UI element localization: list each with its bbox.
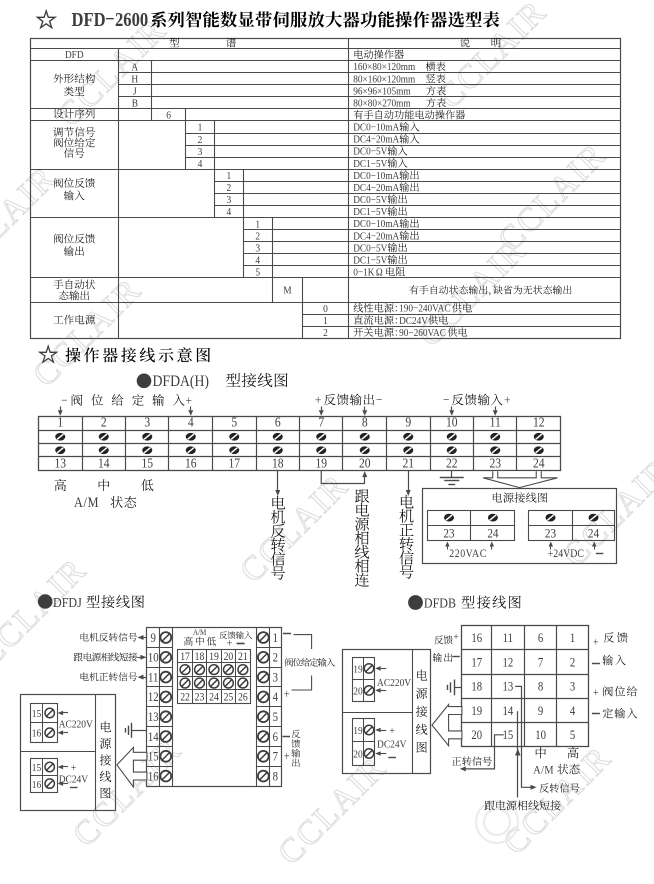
svg-text:J: J [133, 86, 137, 98]
svg-text:23: 23 [443, 526, 454, 541]
svg-text:2: 2 [101, 415, 107, 430]
svg-text:14: 14 [98, 456, 110, 471]
svg-text:1: 1 [323, 315, 328, 327]
svg-text:+: + [71, 762, 77, 774]
svg-text:DC1−5V: DC1−5V [353, 255, 388, 267]
svg-text:+24VDC: +24VDC [548, 547, 584, 560]
svg-text:DC4−20mA: DC4−20mA [353, 231, 400, 243]
svg-text:4: 4 [198, 158, 203, 170]
svg-text:DC1−5V: DC1−5V [353, 158, 388, 170]
svg-text:18: 18 [272, 456, 284, 471]
svg-text:3: 3 [273, 671, 279, 685]
svg-text:DFDJ: DFDJ [53, 594, 82, 610]
svg-text:M: M [283, 285, 291, 297]
svg-text:23: 23 [489, 456, 501, 471]
svg-text:4: 4 [188, 415, 194, 430]
svg-text:+: + [315, 392, 321, 407]
svg-text:9: 9 [151, 631, 157, 645]
svg-text:7: 7 [318, 415, 324, 430]
svg-text:15: 15 [141, 456, 153, 471]
svg-text:DC0−5V: DC0−5V [353, 146, 388, 158]
svg-text:19: 19 [353, 664, 362, 676]
svg-text:1: 1 [226, 170, 231, 182]
svg-text:DC1−5V: DC1−5V [353, 207, 388, 219]
svg-text:17: 17 [471, 656, 482, 670]
svg-text:2: 2 [226, 182, 231, 194]
svg-text:+: + [227, 637, 233, 650]
svg-text:90−260VAC: 90−260VAC [399, 327, 446, 339]
svg-text:25: 25 [224, 692, 234, 704]
svg-text:2: 2 [323, 327, 328, 339]
svg-text:1: 1 [57, 415, 63, 430]
svg-text:80×160×120mm: 80×160×120mm [353, 74, 415, 86]
svg-text:26: 26 [238, 692, 248, 704]
svg-text:5: 5 [570, 728, 576, 742]
svg-text:2: 2 [273, 651, 279, 665]
svg-text:5: 5 [255, 267, 260, 279]
svg-text:190−240VAC: 190−240VAC [399, 303, 451, 315]
svg-text:22: 22 [180, 692, 190, 704]
svg-text:20: 20 [359, 456, 371, 471]
svg-text:13: 13 [502, 680, 513, 694]
svg-text:16: 16 [148, 770, 159, 784]
svg-text:11: 11 [148, 671, 159, 685]
svg-text:DFD: DFD [72, 9, 106, 31]
svg-text:−: − [61, 393, 67, 408]
svg-text:160×80×120mm: 160×80×120mm [353, 62, 415, 74]
svg-text:24: 24 [533, 456, 545, 471]
svg-text:AC220V: AC220V [377, 677, 412, 689]
svg-text:10: 10 [446, 415, 458, 430]
svg-text:18: 18 [471, 680, 482, 694]
svg-text:−: − [105, 8, 114, 30]
svg-text:DC0−5V: DC0−5V [353, 243, 388, 255]
svg-text:DFDB: DFDB [424, 595, 456, 611]
svg-text:AC220V: AC220V [59, 719, 94, 731]
svg-text:4: 4 [255, 255, 260, 267]
svg-text:+: + [453, 631, 459, 643]
svg-text:DC24V: DC24V [377, 739, 407, 751]
svg-text:14: 14 [148, 730, 159, 744]
svg-text:3: 3 [226, 195, 231, 207]
svg-text:4: 4 [273, 690, 279, 704]
svg-text:DC4−20mA: DC4−20mA [353, 134, 400, 146]
svg-text:23: 23 [545, 526, 556, 541]
svg-text:0−1K: 0−1K [353, 267, 375, 279]
svg-text:B: B [132, 98, 138, 110]
svg-text:A/M: A/M [533, 764, 554, 777]
svg-text:5: 5 [273, 710, 279, 724]
svg-text:H: H [131, 74, 138, 86]
svg-text:4: 4 [226, 207, 231, 219]
svg-text:DC4−20mA: DC4−20mA [353, 182, 400, 194]
svg-text:19: 19 [209, 651, 219, 663]
svg-text:12: 12 [148, 690, 159, 704]
svg-text:1: 1 [198, 122, 203, 134]
svg-text:10: 10 [535, 728, 546, 742]
svg-text:5: 5 [231, 415, 237, 430]
svg-text:A/M: A/M [74, 494, 99, 510]
svg-text:15: 15 [32, 708, 41, 720]
svg-text:16: 16 [32, 779, 41, 791]
svg-text:18: 18 [195, 651, 205, 663]
svg-text:24: 24 [588, 526, 599, 541]
svg-text:1: 1 [255, 219, 260, 231]
svg-text:2: 2 [570, 656, 576, 670]
svg-text:20: 20 [353, 686, 362, 698]
svg-text:19: 19 [471, 704, 482, 718]
svg-text:20: 20 [224, 651, 234, 663]
svg-text:A/M: A/M [193, 627, 206, 637]
svg-text:4: 4 [570, 704, 576, 718]
svg-text:16: 16 [185, 456, 197, 471]
svg-text:+: + [284, 687, 290, 701]
svg-text:13: 13 [54, 456, 66, 471]
svg-text:DC0−10mA: DC0−10mA [353, 122, 400, 134]
svg-text:24: 24 [209, 692, 219, 704]
svg-text:+: + [504, 392, 510, 407]
svg-text:220VAC: 220VAC [449, 547, 487, 560]
svg-text:12: 12 [533, 415, 545, 430]
svg-text:6: 6 [538, 631, 544, 645]
svg-text:10: 10 [148, 651, 159, 665]
svg-text:DFD: DFD [65, 50, 84, 62]
svg-text:7: 7 [273, 750, 279, 764]
svg-text:12: 12 [502, 656, 513, 670]
svg-text:+: + [389, 725, 395, 737]
svg-text:17: 17 [180, 651, 190, 663]
svg-text:2: 2 [198, 134, 203, 146]
svg-text:11: 11 [503, 631, 514, 645]
svg-text:8: 8 [273, 770, 279, 784]
svg-text:3: 3 [570, 680, 576, 694]
svg-text:23: 23 [195, 692, 205, 704]
svg-text:96×96×105mm: 96×96×105mm [353, 86, 411, 98]
svg-text:3: 3 [255, 243, 260, 255]
svg-text:+: + [593, 686, 599, 699]
svg-text:DC0−10mA: DC0−10mA [353, 170, 400, 182]
svg-text:7: 7 [538, 656, 544, 670]
svg-text:Ω: Ω [376, 267, 383, 279]
svg-text:−: − [443, 392, 449, 407]
svg-text:16: 16 [32, 728, 41, 740]
svg-text:19: 19 [353, 725, 362, 737]
svg-text:6: 6 [275, 415, 281, 430]
svg-text:80×80×270mm: 80×80×270mm [353, 98, 411, 110]
svg-text:15: 15 [32, 762, 41, 774]
svg-text:19: 19 [315, 456, 327, 471]
svg-text:−: − [376, 392, 382, 407]
svg-text:17: 17 [228, 456, 240, 471]
svg-text:20: 20 [353, 749, 362, 761]
svg-text:+: + [593, 636, 599, 649]
svg-text:9: 9 [405, 415, 411, 430]
svg-text:22: 22 [446, 456, 458, 471]
svg-text:24: 24 [487, 526, 498, 541]
svg-text:DC24V: DC24V [399, 315, 429, 327]
svg-text:11: 11 [490, 415, 501, 430]
svg-text:1: 1 [273, 631, 279, 645]
svg-text:DC0−10mA: DC0−10mA [353, 219, 400, 231]
svg-text:16: 16 [471, 631, 482, 645]
svg-text:3: 3 [198, 146, 203, 158]
svg-text:13: 13 [148, 710, 159, 724]
svg-text:DFDA(H): DFDA(H) [153, 373, 210, 390]
svg-text:6: 6 [273, 730, 279, 744]
svg-text:21: 21 [402, 456, 414, 471]
svg-text:3: 3 [144, 415, 150, 430]
svg-text:9: 9 [538, 704, 544, 718]
svg-text:21: 21 [238, 651, 248, 663]
svg-text:6: 6 [166, 110, 171, 122]
svg-text:2: 2 [255, 231, 260, 243]
svg-text:8: 8 [362, 415, 368, 430]
svg-text:14: 14 [502, 704, 513, 718]
svg-text:+: + [186, 393, 192, 408]
svg-text:1: 1 [570, 631, 576, 645]
svg-text:DC0−5V: DC0−5V [353, 194, 388, 206]
svg-text:15: 15 [502, 728, 513, 742]
svg-text:A: A [131, 62, 138, 74]
svg-text:8: 8 [538, 680, 544, 694]
svg-text:15: 15 [148, 750, 159, 764]
svg-text:0: 0 [323, 303, 328, 315]
svg-text:2600: 2600 [115, 9, 148, 31]
svg-text:+: + [284, 749, 290, 763]
svg-text:20: 20 [471, 728, 482, 742]
